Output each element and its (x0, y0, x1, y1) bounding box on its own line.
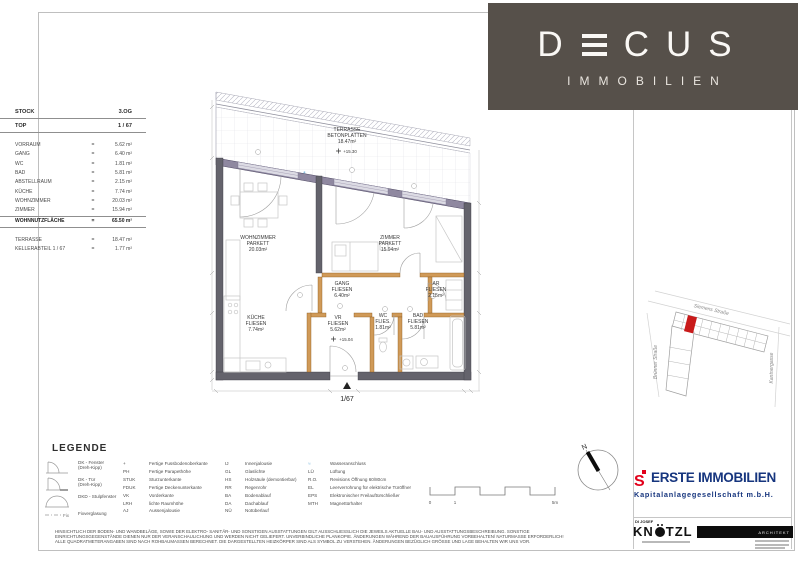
room-label-zimmer: ZIMMER PARKETT 15.94m² (379, 235, 402, 253)
svg-text:20.03m²: 20.03m² (249, 247, 268, 253)
legend-item: R.O.Revisions Öffnung 60/80cm (308, 476, 411, 484)
table-row: GANG=6.40 m² (0, 151, 146, 157)
table-row: ABSTELLRAUM=2.15 m² (0, 179, 146, 185)
legend-item: ELLeerverrohrung für elektrische Türöffn… (308, 484, 411, 492)
legend-column-4: ≈Wasseranschluss LÜLüftung R.O.Revisions… (308, 460, 411, 507)
svg-text:5m: 5m (552, 500, 559, 505)
svg-text:6.40m²: 6.40m² (334, 293, 350, 299)
table-row: ZIMMER=15.94 m² (0, 207, 146, 213)
plan-sheet: * (0, 0, 800, 566)
unit-entry-marker: 1/67 (340, 382, 354, 403)
svg-text:7.74m²: 7.74m² (248, 327, 264, 333)
legend-item: LRHlichte Raumhöhe (123, 500, 208, 508)
legend-title: LEGENDE (52, 443, 107, 454)
table-row: TERRASSE=18.47 m² (0, 237, 146, 243)
legend-item: RRRegenrohr (225, 484, 297, 492)
street-label-left: Brünner Straße (653, 345, 659, 379)
legend-item: DK - Fenster(Dreh-Kipp) (44, 460, 104, 474)
room-label-wc: WC FLIES. 1.81m² (375, 313, 391, 331)
erste-subtitle: Kapitalanlagegesellschaft m.b.H. (634, 490, 788, 499)
legend-item: LÜLüftung (308, 468, 411, 476)
legend-item: PHFertige Parapethöhe (123, 468, 208, 476)
svg-text:+15.04: +15.04 (339, 337, 353, 342)
sparkasse-s-icon: S (634, 470, 648, 488)
street-label-right: Kantnergasse (769, 352, 775, 383)
svg-text:N: N (581, 443, 589, 451)
room-label-vr: VR FLIESEN 5.62m² +15.04 (328, 315, 354, 342)
decus-e-bars-icon (582, 34, 607, 56)
fine-print-line (755, 547, 785, 549)
architect-title-bar: ARCHITEKT (697, 526, 793, 538)
table-row: WOHNZIMMER=20.03 m² (0, 198, 146, 204)
site-map: Siemens Straße Brünner Straße Kantnergas… (633, 285, 790, 418)
legend-item: DKD - Stulpfenster (44, 494, 116, 508)
legend-item: NÜNotüberlauf (225, 507, 297, 515)
svg-text:1/67: 1/67 (340, 396, 354, 403)
architect-logo: KN TZL (633, 524, 693, 539)
legend-item: +Fertige Fussbodenoberkante (123, 460, 208, 468)
decus-letters-cus: CUS (624, 25, 749, 65)
table-row: KÜCHE=7.74 m² (0, 189, 146, 195)
street-label-top: Siemens Straße (693, 303, 729, 317)
table-row: BAD=5.81 m² (0, 170, 146, 176)
legend-column-2: +Fertige Fussbodenoberkante PHFertige Pa… (123, 460, 208, 515)
legend-item: HSHolzsäule (demontierbar) (225, 476, 297, 484)
svg-text:2.15m²: 2.15m² (428, 293, 444, 299)
room-label-gang: GANG FLIESEN 6.40m² (332, 281, 353, 299)
erste-name: ERSTE IMMOBILIEN (651, 470, 776, 485)
erste-immobilien-logo: S ERSTE IMMOBILIEN Kapitalanlagegesellsc… (634, 470, 788, 499)
disclaimer-text: HINSICHTLICH DER BODEN- UND WANDBELÄGE, … (55, 529, 585, 545)
legend-item: FDUKFertige Deckenunterkante (123, 484, 208, 492)
legend-item: VKVorderkante (123, 492, 208, 500)
legend-item: GLGlaslichte (225, 468, 297, 476)
legend-item: EPSElektronischer Freilauftürschließer (308, 492, 411, 500)
room-label-kueche: KÜCHE FLIESEN 7.74m² (246, 314, 267, 333)
room-label-wohnzimmer: WOHNZIMMER PARKETT 20.03m² (240, 235, 276, 253)
legend-item: DK - Tür(Dreh-Kipp) (44, 477, 102, 491)
north-arrow-icon: N (572, 442, 626, 500)
svg-text:Fix: Fix (63, 513, 70, 518)
decus-letter-d: D (537, 25, 564, 65)
svg-text:0: 0 (429, 500, 432, 505)
stock-row: STOCK3.OG (0, 109, 146, 115)
legend-item: IJInnenjalousie (225, 460, 297, 468)
svg-text:KÜCHE: KÜCHE (247, 314, 265, 321)
water-connection-icon: ≈ (308, 460, 330, 468)
legend-symbol-fixverglasung-icon: Fix (44, 511, 70, 519)
fine-print-line (642, 541, 690, 543)
legend-item: BABodenablauf (225, 492, 297, 500)
svg-text:1: 1 (454, 500, 457, 505)
top-row: TOP1 / 67 (0, 123, 146, 129)
fine-print-line (755, 540, 789, 542)
svg-text:S: S (634, 473, 645, 490)
decus-wordmark: D CUS (537, 25, 748, 65)
legend-item: AJAussenjalousie (123, 507, 208, 515)
legend-symbol-dkd-stulpfenster-icon (44, 494, 70, 508)
table-row: VORRAUM=5.62 m² (0, 142, 146, 148)
legend-item: STUKSturzunterkante (123, 476, 208, 484)
architect-title: ARCHITEKT (758, 530, 790, 535)
decus-subtitle: IMMOBILIEN (567, 74, 728, 88)
svg-text:5.81m²: 5.81m² (410, 325, 426, 331)
legend-column-3: IJInnenjalousie GLGlaslichte HSHolzsäule… (225, 460, 297, 515)
legend-item: MTHMagnettürhalter (308, 500, 411, 508)
scale-bar: 0 1 5m (425, 480, 565, 508)
svg-text:+15.30: +15.30 (343, 149, 357, 154)
knoetzl-o-icon (655, 527, 665, 537)
fine-print-line (755, 544, 789, 546)
total-row: WOHNNUTZFLÄCHE=65.50 m² (0, 218, 146, 224)
decus-logo: D CUS IMMOBILIEN (488, 3, 798, 110)
legend-item: ≈Wasseranschluss (308, 460, 411, 468)
legend-item: DADachablauf (225, 500, 297, 508)
legend-symbol-dk-fenster-icon (44, 460, 70, 474)
legend-item: Fix Fixverglasung (44, 511, 107, 519)
svg-text:5.62m²: 5.62m² (330, 327, 346, 333)
legend-symbol-dk-tuer-icon (44, 477, 70, 491)
svg-text:18.47m²: 18.47m² (338, 139, 357, 145)
svg-text:1.81m²: 1.81m² (375, 325, 391, 331)
table-row: KELLERABTEIL 1 / 67=1.77 m² (0, 246, 146, 252)
table-row: WC=1.81 m² (0, 161, 146, 167)
svg-text:15.94m²: 15.94m² (381, 247, 400, 253)
